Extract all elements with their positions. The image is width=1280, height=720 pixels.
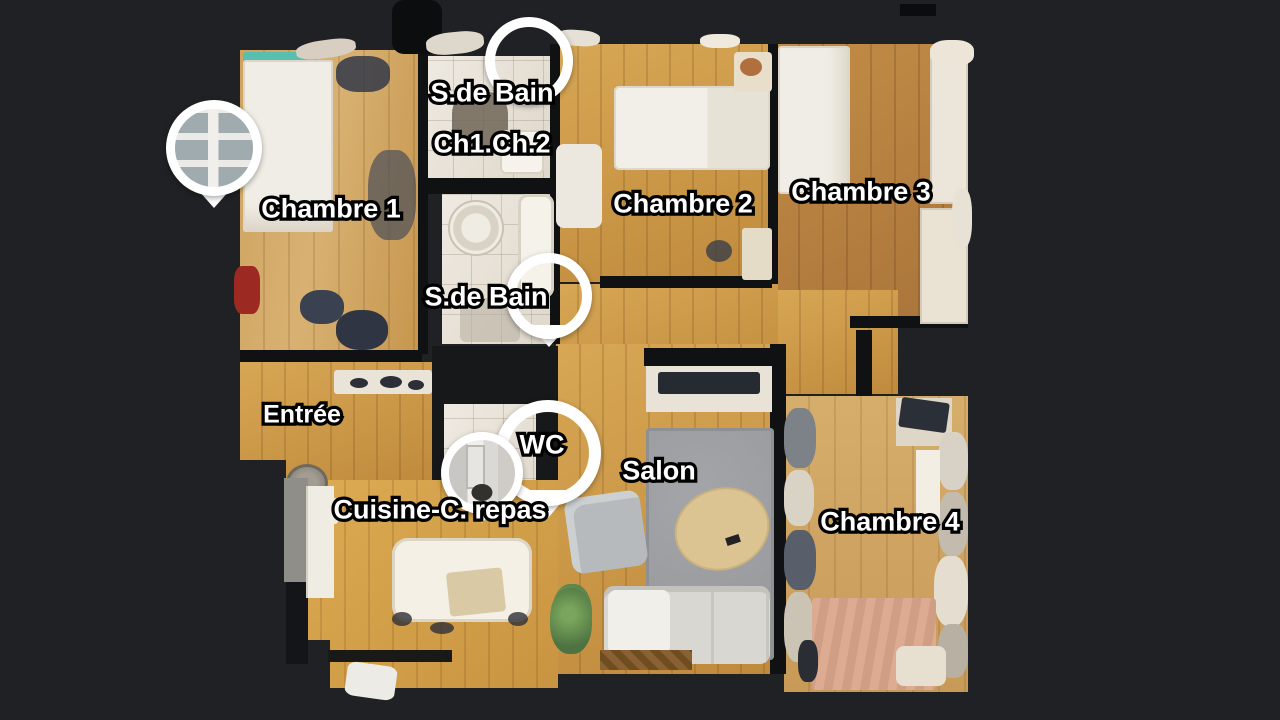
wall [424,178,556,194]
room-label-text: S.de Bain [430,78,553,108]
wall [856,330,872,396]
room-label-chambre-2: Chambre 2Chambre 2 [613,191,753,218]
room-label-ch1-ch2: Ch1.Ch.2Ch1.Ch.2 [433,131,550,158]
room-label-salon: SalonSalon [622,458,696,485]
fridge [306,486,334,598]
monitor [898,397,950,433]
kitchen-counter-dark [286,580,308,664]
room-label-text: Chambre 2 [613,189,753,219]
washing-machine [448,200,504,256]
clutter [300,290,344,324]
clutter [336,56,390,92]
room-label-text: WC [520,430,565,460]
clutter [934,556,968,626]
room-label-chambre-3: Chambre 3Chambre 3 [791,179,931,206]
desk [742,228,772,280]
room-label-wc: WCWC [520,432,565,459]
room-label-entree: EntréeEntrée [263,403,341,428]
shoes [350,378,368,388]
clutter [336,310,388,350]
room-label-cuisine: Cuisine-C. repasCuisine-C. repas [333,497,546,524]
room-label-text: Cuisine-C. repas [333,495,546,525]
room-label-text: Chambre 4 [820,507,960,537]
room-label-text: Ch1.Ch.2 [433,129,550,159]
chair [392,612,412,626]
shoes [408,380,424,390]
clutter [784,530,816,590]
wall [240,350,422,362]
chair [706,240,732,262]
plant [550,588,592,654]
floor-notch [240,460,286,518]
chair [430,622,454,634]
room-label-text: Entrée [263,401,341,429]
kitchen-bottom-wall [328,650,452,662]
box-on-island [446,567,506,617]
debris [952,188,972,248]
bed [778,46,850,194]
marker-entry-photo-pin[interactable] [166,100,262,196]
wall-top-right-bar [900,4,936,16]
pillow [896,646,946,686]
paper [344,661,398,702]
room-label-text: Salon [622,456,696,486]
round-object [740,58,762,76]
throw-blanket [608,590,670,654]
room-label-chambre-4: Chambre 4Chambre 4 [820,509,960,536]
wall [644,348,778,366]
chair [508,612,528,626]
clutter [784,408,816,468]
floorplan-canvas[interactable]: S.de BainS.de BainCh1.Ch.2Ch1.Ch.2Chambr… [0,0,1280,720]
shoes [380,376,402,388]
bed [614,86,770,170]
red-cloth [234,266,260,314]
room-label-sdb-top: S.de BainS.de Bain [430,80,553,107]
debris [700,34,740,48]
debris [930,40,974,66]
parquet-strip [600,650,692,670]
room-label-sdb-middle: S.de BainS.de Bain [424,284,547,311]
clutter [938,432,968,490]
room-label-text: S.de Bain [424,282,547,312]
wardrobe [930,52,968,204]
room-label-chambre-1: Chambre 1Chambre 1 [261,196,401,223]
counter [284,478,308,582]
room-label-text: Chambre 1 [261,194,401,224]
room-label-text: Chambre 3 [791,177,931,207]
window-photo-icon [166,100,262,196]
pillow [556,144,602,228]
corridor-right-floor [778,290,898,394]
mirror-in-photo [466,445,485,489]
clutter [798,640,818,682]
clutter [784,470,814,526]
monitor [658,372,760,394]
